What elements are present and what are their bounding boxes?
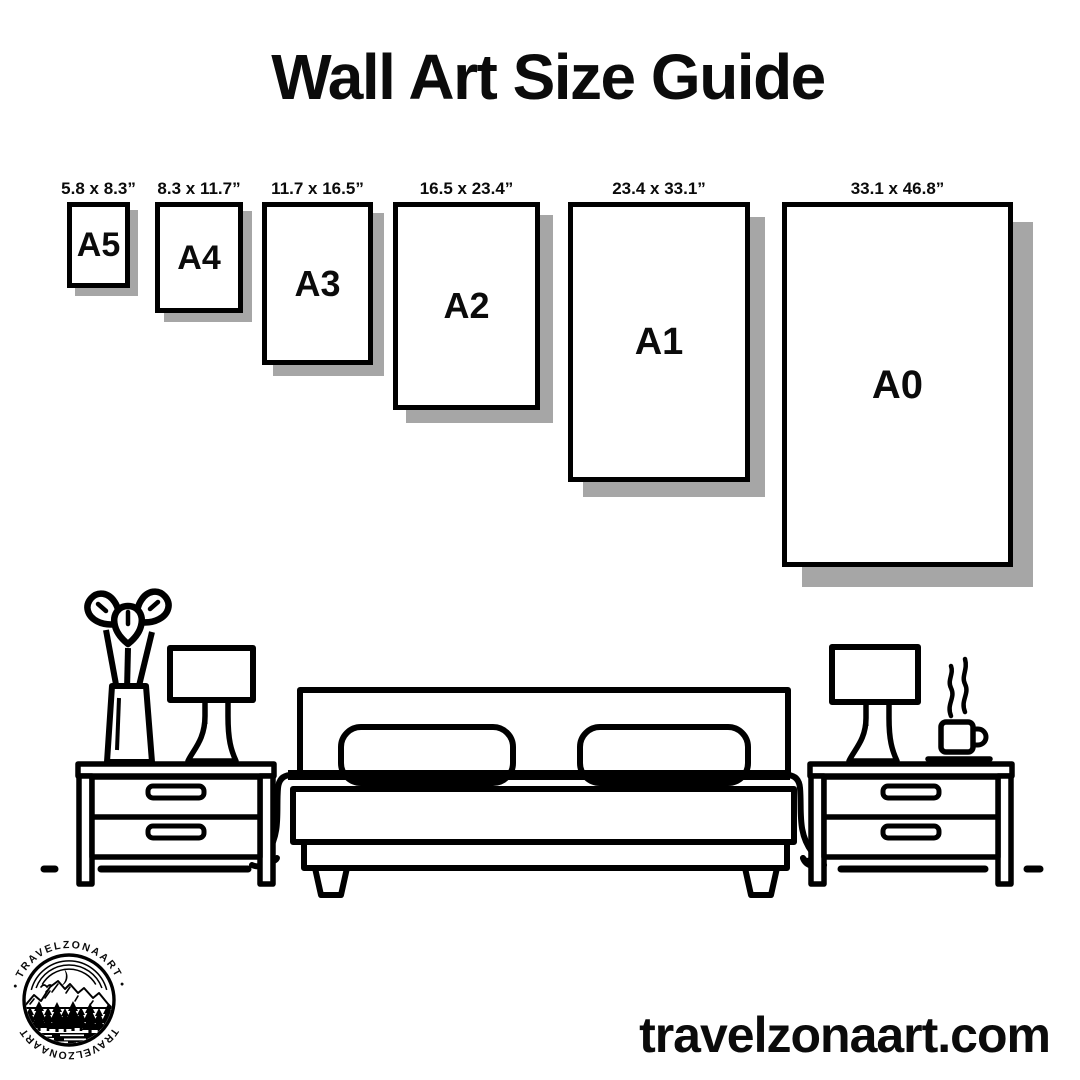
brand-logo: • TRAVELZONAART • TRAVELZONAART [8, 938, 130, 1062]
bedroom-illustration [0, 0, 1080, 1080]
website-url: travelzonaart.com [639, 1006, 1050, 1064]
potted-plant-icon [82, 586, 174, 762]
size-guide-poster: Wall Art Size Guide 5.8 x 8.3” A5 8.3 x … [0, 0, 1080, 1080]
coffee-cup-icon [928, 659, 990, 759]
moon-icon [61, 969, 68, 986]
table-lamp-left-icon [170, 648, 253, 761]
mountains-icon [23, 981, 112, 1008]
table-lamp-right-icon [832, 647, 918, 761]
steam-icon [950, 659, 967, 716]
double-bed-icon [252, 690, 824, 895]
